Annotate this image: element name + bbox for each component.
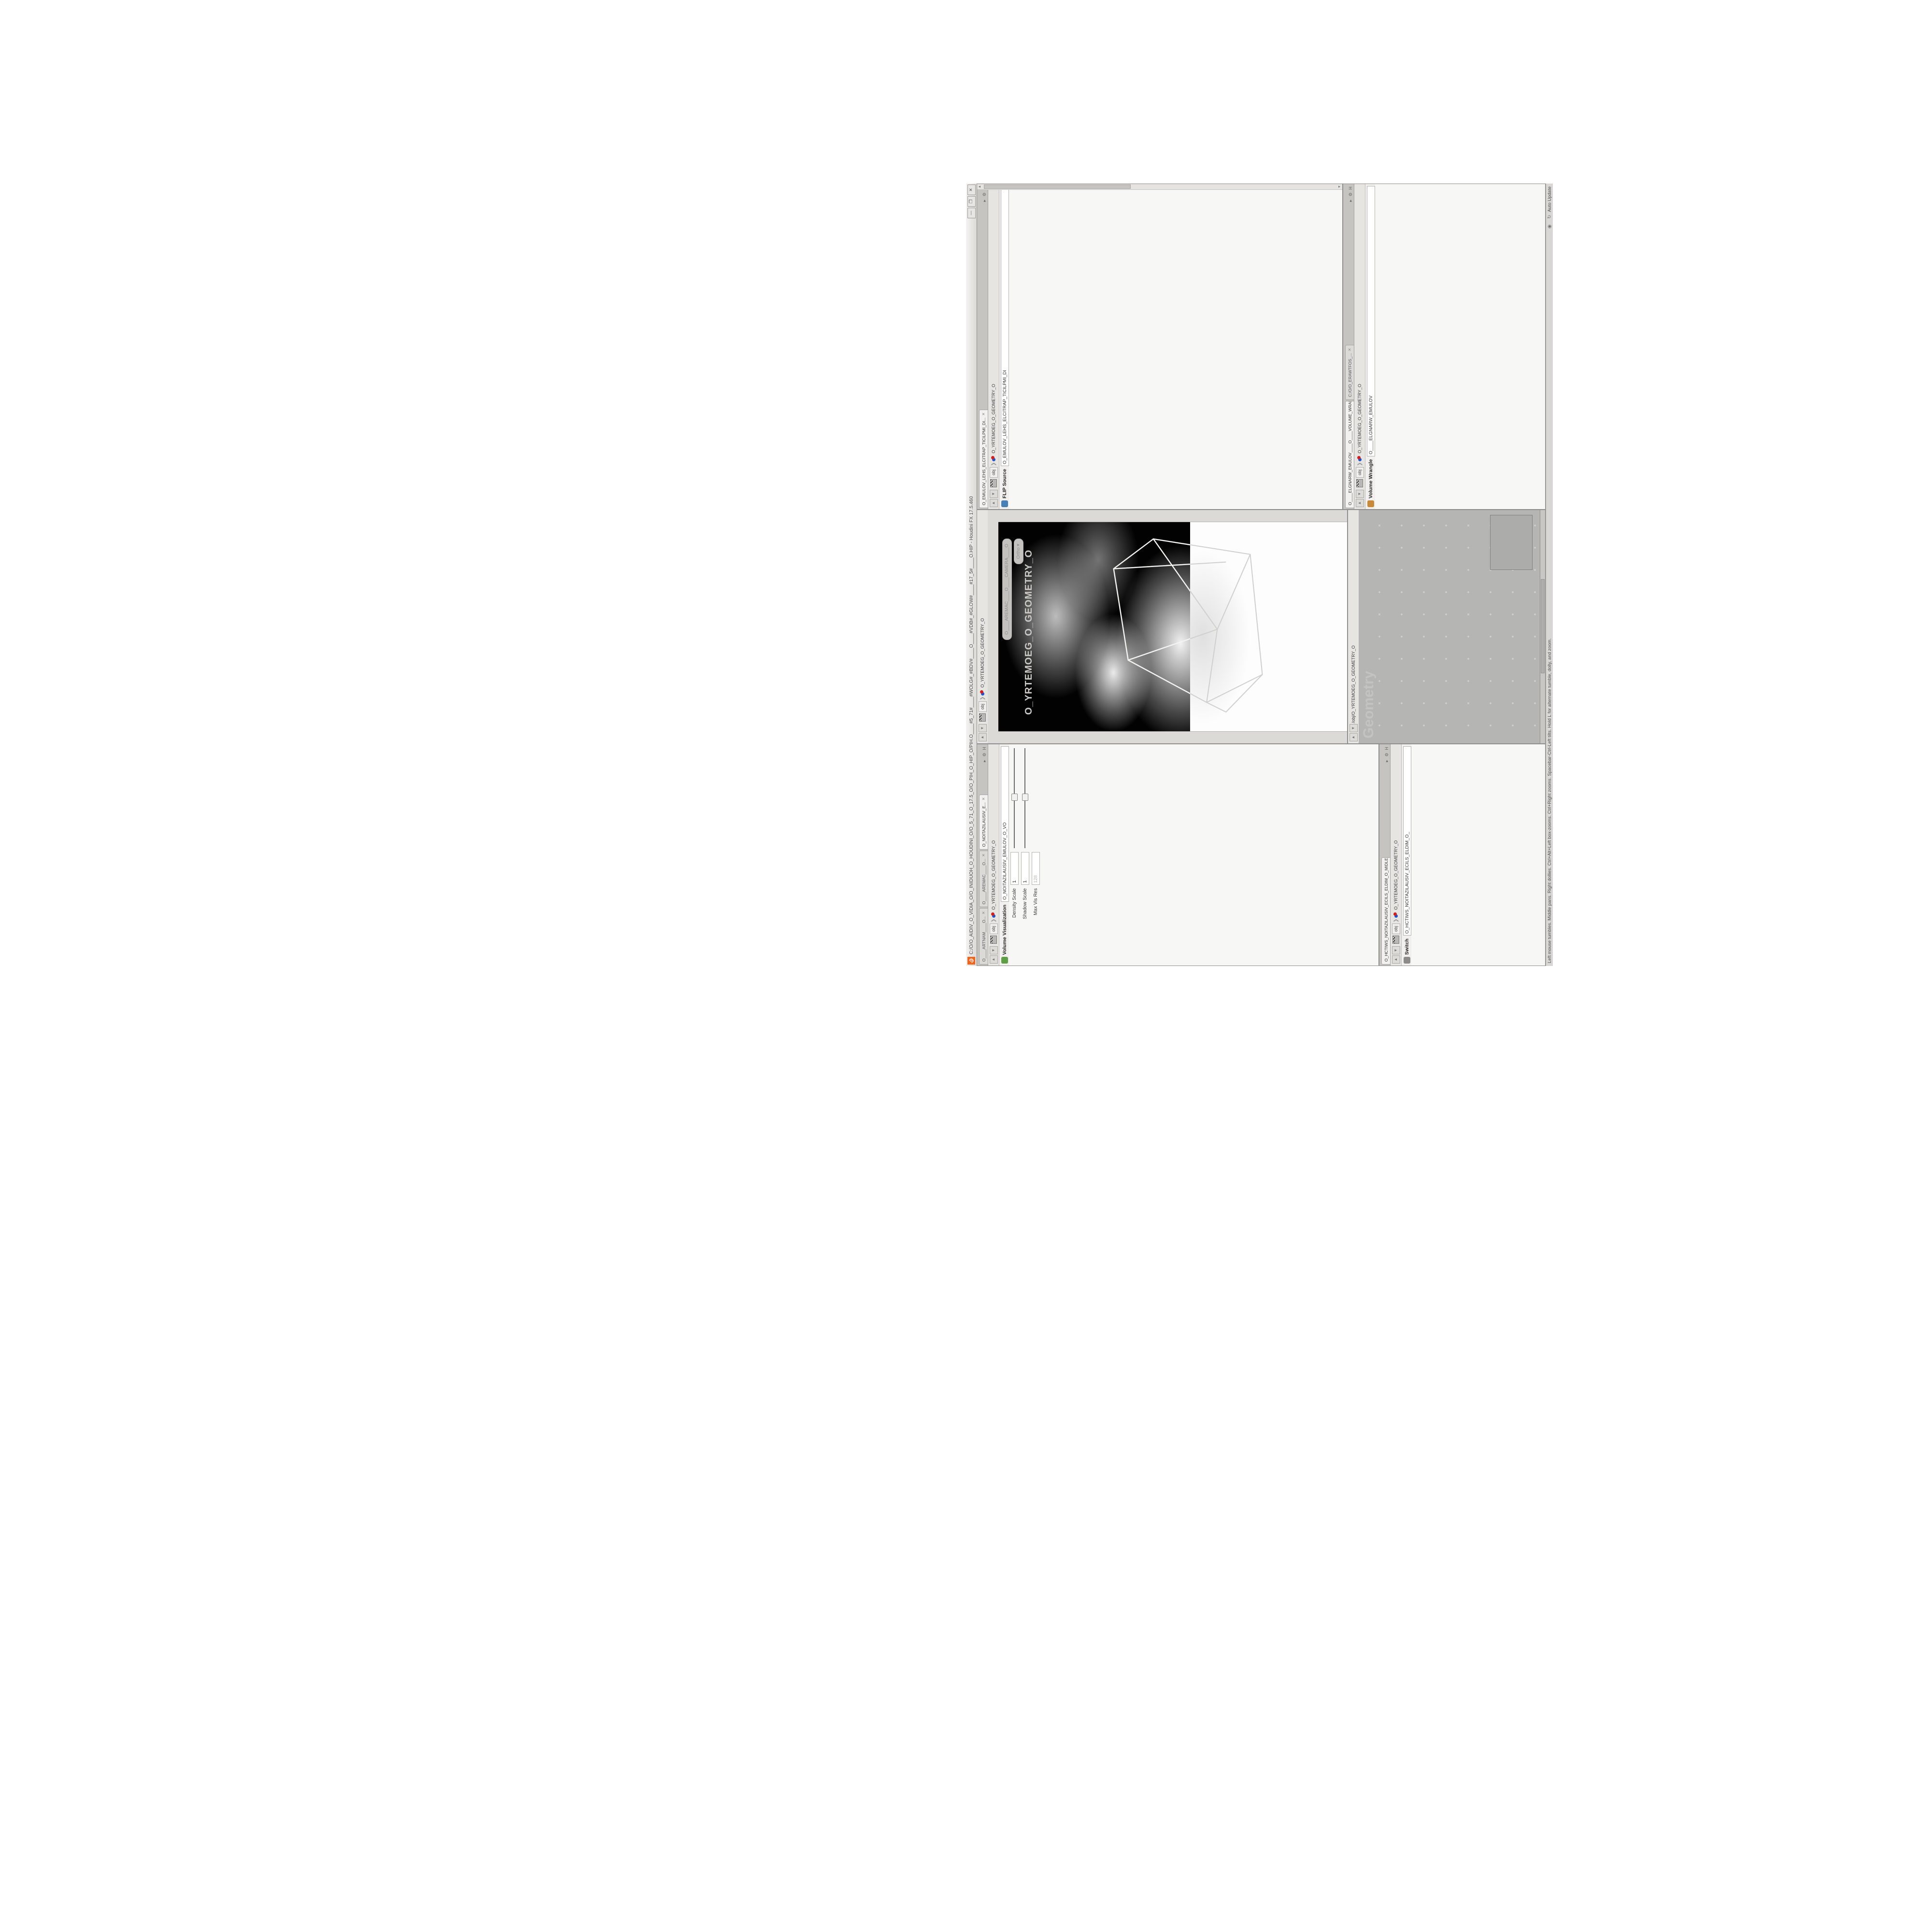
node-color-icon xyxy=(991,911,996,918)
volume-visualization-pane: O____ARTNAM____O...✕O____AREMAC____O...✕… xyxy=(977,744,1379,966)
wireframe-hull xyxy=(998,522,1347,731)
viz-pane-tabbar: O____ARTNAM____O...✕O____AREMAC____O...✕… xyxy=(977,744,988,966)
minimize-button[interactable]: — xyxy=(967,208,976,218)
shadow-scale-field[interactable]: 1 xyxy=(1021,852,1029,885)
flip-pane-tabbar: O_EMULOV_LEHS_ELCITRAP_TICILPMI_DI...✕▸⚙… xyxy=(977,184,988,509)
clapperboard-icon xyxy=(1392,936,1399,944)
houdini-window: C:/O/O_AIDIV_O_VIDIA_O/O_INIDUOH_O_HOUDI… xyxy=(966,184,1553,966)
node-color-icon xyxy=(991,455,996,461)
node-name-field[interactable]: O_HCTIWS_NOITAZILAUSIV_ECILS_ELDIM_O_ xyxy=(1403,746,1411,936)
node-color-icon xyxy=(1393,911,1399,918)
maximize-button[interactable]: ❐ xyxy=(967,196,976,207)
breadcrumb-obj[interactable]: obj xyxy=(979,701,987,712)
viz-pane-pathbar: ▲▼obj❯O_YRTEMOEG_O_GEOMETRY_O xyxy=(988,744,999,966)
switch-parameters xyxy=(1411,744,1545,966)
quadrant-top-right: C:/O/O_AIDIV_O_VIDIA_O/O_INIDUOH_O_HOUDI… xyxy=(966,184,1553,966)
update-mode-label[interactable]: Auto Update xyxy=(1547,184,1552,212)
viewport-watermark: O_YRTEMOEG_O_GEOMETRY_O xyxy=(1023,550,1035,715)
net-back-icon[interactable]: ▲ xyxy=(1350,733,1358,741)
viewport-pathbar: ▲▼obj❯O_YRTEMOEG_O_GEOMETRY_O xyxy=(977,510,988,743)
wrangle-pane-tabbar: O____ELGNARW_EMULOV____O____VOLUME_WRANG… xyxy=(1343,184,1354,509)
tab-o-noitazilausiv-e[interactable]: O_NOITAZILAUSIV_E...✕ xyxy=(979,795,988,850)
row-max-vis-res: Max Vis Res128 xyxy=(1030,744,1041,966)
param-slider[interactable] xyxy=(1011,748,1018,848)
param-label: Density Scale xyxy=(1012,885,1017,960)
tab-close-icon[interactable]: ✕ xyxy=(980,412,988,416)
node-type-title: Volume Wrangle xyxy=(1368,459,1374,498)
tab-o-emulov-lehs-elcitrap-ticilpmi-di[interactable]: O_EMULOV_LEHS_ELCITRAP_TICILPMI_DI...✕ xyxy=(979,410,988,508)
clapperboard-icon xyxy=(990,479,997,487)
path-up-icon[interactable]: ▲ xyxy=(1392,955,1400,964)
pane-houdini-icon[interactable]: H xyxy=(1383,745,1390,752)
pane-play-icon[interactable]: ▸ xyxy=(1383,758,1390,764)
breadcrumb-separator-icon: ❯ xyxy=(991,462,996,466)
clapperboard-icon xyxy=(979,713,986,722)
pane-gear-icon[interactable]: ⚙ xyxy=(981,752,988,758)
pane-houdini-icon[interactable]: H xyxy=(981,745,988,752)
wrangle-parameters xyxy=(1375,184,1545,509)
breadcrumb-geometry[interactable]: O_YRTEMOEG_O_GEOMETRY_O xyxy=(1393,840,1398,910)
network-minimap[interactable] xyxy=(1490,515,1533,570)
node-type-title: FLIP Source xyxy=(1002,469,1008,498)
param-label: Shadow Scale xyxy=(1023,885,1028,960)
refresh-icon[interactable]: ↻ xyxy=(1547,213,1553,220)
tab-close-icon[interactable]: ✕ xyxy=(980,797,988,801)
close-button[interactable]: ✕ xyxy=(967,185,976,195)
param-label: Max Vis Res xyxy=(1033,885,1038,960)
pane-gear-icon[interactable]: ⚙ xyxy=(1383,752,1390,758)
scene-viewport-pane: ▲▼obj❯O_YRTEMOEG_O_GEOMETRY_O xyxy=(977,510,1348,744)
status-help-text: Left mouse tumbles. Middle pans. Right d… xyxy=(1547,231,1552,966)
breadcrumb-obj[interactable]: obj xyxy=(1356,467,1364,478)
quadrant-bottom-left-mirrored xyxy=(379,966,966,1748)
pane-play-icon[interactable]: ▸ xyxy=(981,758,988,764)
row-shadow-scale: Shadow Scale1 xyxy=(1020,744,1030,966)
kaleidoscope-stage: C:/O/O_AIDIV_O_VIDIA_O/O_INIDUOH_O_HOUDI… xyxy=(379,184,1553,1748)
switch-pane-pathbar: ▲▼obj❯O_YRTEMOEG_O_GEOMETRY_O xyxy=(1391,744,1402,966)
pane-gear-icon[interactable]: ⚙ xyxy=(1347,191,1354,198)
path-down-icon[interactable]: ▼ xyxy=(990,946,998,954)
pane-play-icon[interactable]: ▸ xyxy=(1347,198,1354,204)
node-color-icon xyxy=(980,689,985,696)
tab-o-aremac-o[interactable]: O____AREMAC____O...✕ xyxy=(979,851,988,907)
param-slider[interactable] xyxy=(1022,748,1028,848)
switch-pane: O_HCTIWS_NOITAZILAUSIV_ECILS_ELDIM_O_MID… xyxy=(1379,744,1546,966)
node-color-icon xyxy=(1357,455,1363,461)
tab-o-elgnarw-emulov-o-volume-wrangl[interactable]: O____ELGNARW_EMULOV____O____VOLUME_WRANG… xyxy=(1345,401,1354,508)
path-down-icon[interactable]: ▼ xyxy=(1356,490,1364,498)
projection-pill[interactable]: Ortho ▾ xyxy=(1014,539,1023,564)
breadcrumb-geometry[interactable]: O_YRTEMOEG_O_GEOMETRY_O xyxy=(991,840,996,910)
breadcrumb-obj[interactable]: obj xyxy=(990,923,998,934)
network-canvas[interactable]: Geometry xyxy=(1359,510,1540,743)
breadcrumb-geometry[interactable]: O_YRTEMOEG_O_GEOMETRY_O xyxy=(1357,384,1362,454)
tab-c-o-o-erawtfos[interactable]: C:/O/O_ERAWTFOS_...✕ xyxy=(1345,345,1354,400)
net-fwd-icon[interactable]: ▼ xyxy=(1350,724,1358,732)
network-hscrollbar[interactable] xyxy=(1540,510,1545,743)
node-name-field[interactable]: O_NOITAZILAUSIV_EMULOV_O_VO xyxy=(1001,746,1009,902)
node-type-title: Switch xyxy=(1404,938,1410,955)
path-down-icon[interactable]: ▼ xyxy=(990,490,998,498)
switch-icon xyxy=(1404,957,1410,964)
breadcrumb-separator-icon: ❯ xyxy=(1393,919,1399,923)
viewport-top-toolbar xyxy=(988,510,999,743)
tab-close-icon[interactable]: ✕ xyxy=(980,911,988,914)
density-scale-field[interactable]: 1 xyxy=(1010,852,1019,885)
flip-vscrollbar[interactable]: ▲▼ xyxy=(977,184,1342,190)
row-density-scale: Density Scale1 xyxy=(1009,744,1020,966)
path-up-icon[interactable]: ▲ xyxy=(1356,499,1364,507)
pane-houdini-icon[interactable]: H xyxy=(1347,185,1354,191)
flip-parameters xyxy=(1009,184,1342,509)
breadcrumb-separator-icon: ❯ xyxy=(991,919,996,923)
node-name-field[interactable]: O____ELGNARW_EMULOV xyxy=(1367,186,1375,456)
volume-wrangle-icon xyxy=(1367,500,1374,507)
tab-o-artnam-o[interactable]: O____ARTNAM____O...✕ xyxy=(979,908,988,965)
path-up-icon[interactable]: ▲ xyxy=(990,955,998,964)
tab-o-hctiws-noitazilausiv-ecils-eldim-o-midle-slice-vi[interactable]: O_HCTIWS_NOITAZILAUSIV_ECILS_ELDIM_O_MID… xyxy=(1381,857,1390,965)
tab-close-icon[interactable]: ✕ xyxy=(980,853,988,857)
tab-close-icon[interactable]: ✕ xyxy=(1346,348,1354,351)
breadcrumb-geometry[interactable]: O_YRTEMOEG_O_GEOMETRY_O xyxy=(991,384,996,454)
flip-pane-pathbar: ▲▼obj❯O_YRTEMOEG_O_GEOMETRY_O xyxy=(988,184,999,509)
breadcrumb-separator-icon: ❯ xyxy=(1357,462,1363,466)
max-vis-res-field[interactable]: 128 xyxy=(1032,852,1040,885)
quadrant-top-left-mirrored xyxy=(379,184,966,966)
network-editor-pane: ▲ ▼ /obj/O_YRTEMOEG_O_GEOMETRY_O Geometr… xyxy=(1348,510,1546,744)
wrangle-pane-pathbar: ▲▼obj❯O_YRTEMOEG_O_GEOMETRY_O xyxy=(1354,184,1365,509)
volume-wrangle-pane: O____ELGNARW_EMULOV____O____VOLUME_WRANG… xyxy=(1343,184,1546,510)
viewport-render-area[interactable]: O_YRTEMOEG_O_GEOMETRY_O O____AREMAC____O… xyxy=(998,522,1347,731)
clapperboard-icon xyxy=(990,936,997,944)
path-down-icon[interactable]: ▼ xyxy=(1392,946,1400,954)
network-pathbar: ▲ ▼ /obj/O_YRTEMOEG_O_GEOMETRY_O xyxy=(1348,510,1359,743)
cook-mode-icon[interactable]: ◉ xyxy=(1547,223,1553,230)
status-bar: Left mouse tumbles. Middle pans. Right d… xyxy=(1546,184,1553,966)
network-path[interactable]: /obj/O_YRTEMOEG_O_GEOMETRY_O xyxy=(1351,645,1356,723)
node-type-title: Volume Visualization xyxy=(1002,905,1008,955)
path-up-icon[interactable]: ▲ xyxy=(990,499,998,507)
path-down-icon[interactable]: ▼ xyxy=(979,724,987,732)
switch-pane-tabbar: O_HCTIWS_NOITAZILAUSIV_ECILS_ELDIM_O_MID… xyxy=(1379,744,1391,966)
pane-play-icon[interactable]: ▸ xyxy=(981,198,988,204)
breadcrumb-obj[interactable]: obj xyxy=(990,467,998,478)
quadrant-bottom-right-mirrored xyxy=(966,966,1553,1748)
node-name-field[interactable]: O_EMULOV_LEHS_ELCITRAP_TICILPMI_DI xyxy=(1001,186,1009,466)
breadcrumb-separator-icon: ❯ xyxy=(980,696,985,700)
viewport-right-toolbar xyxy=(998,510,1347,522)
volume-visualization-icon xyxy=(1001,957,1008,964)
window-title: C:/O/O_AIDIV_O_VIDIA_O/O_INIDUOH_O_HOUDI… xyxy=(969,218,974,954)
houdini-logo-icon xyxy=(967,957,975,965)
pane-gear-icon[interactable]: ⚙ xyxy=(981,191,988,198)
flip-source-icon xyxy=(1001,500,1008,507)
camera-menu-pill[interactable]: O____AREMAC____O____CAMERA____O xyxy=(1002,539,1012,640)
viewport-left-toolbar xyxy=(998,731,1347,743)
viz-parameters: Density Scale1Shadow Scale1Max Vis Res12… xyxy=(1009,744,1378,966)
breadcrumb-geometry[interactable]: O_YRTEMOEG_O_GEOMETRY_O xyxy=(980,618,985,688)
flip-source-pane: O_EMULOV_LEHS_ELCITRAP_TICILPMI_DI...✕▸⚙… xyxy=(977,184,1343,510)
breadcrumb-obj[interactable]: obj xyxy=(1392,923,1400,934)
window-titlebar: C:/O/O_AIDIV_O_VIDIA_O/O_INIDUOH_O_HOUDI… xyxy=(966,184,977,966)
clapperboard-icon xyxy=(1356,479,1363,487)
path-up-icon[interactable]: ▲ xyxy=(979,733,987,741)
